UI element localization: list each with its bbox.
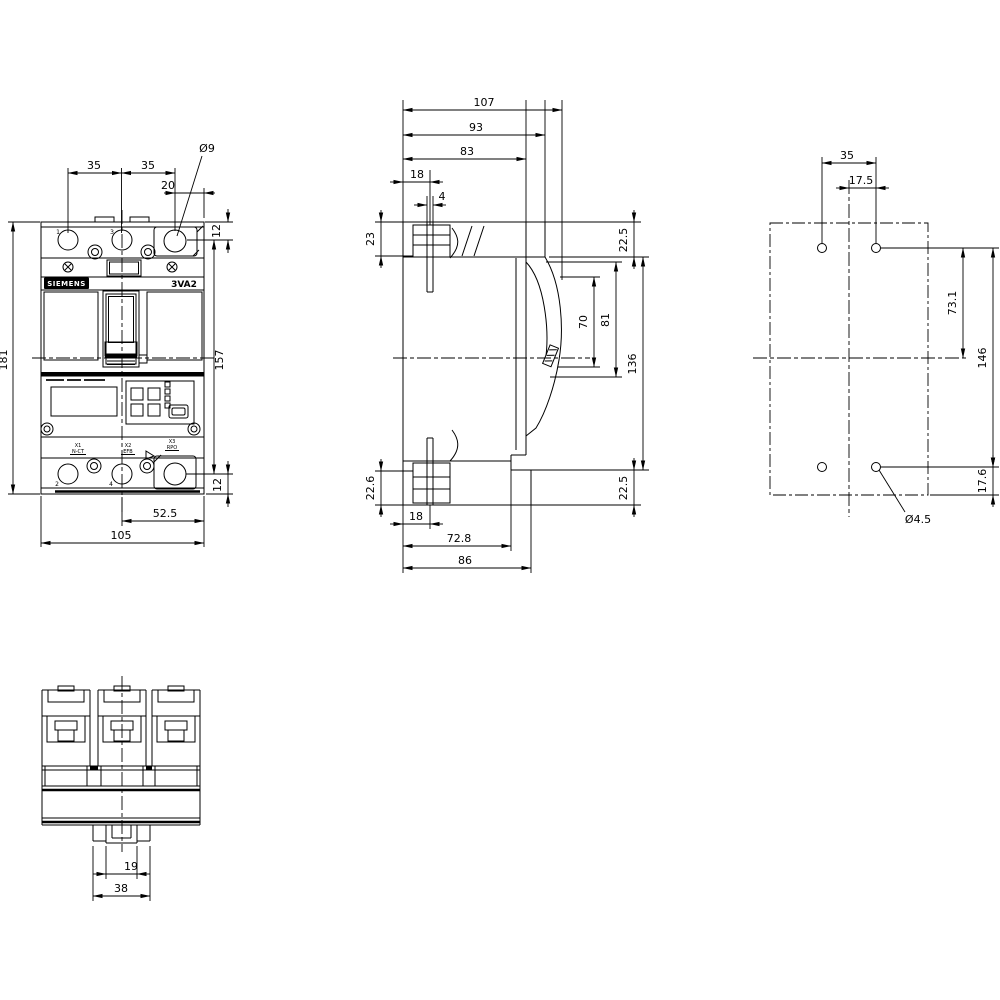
dim-mount-17-5: 17.5 xyxy=(849,174,874,187)
dim-side-81: 81 xyxy=(599,313,612,327)
terminal-2-hole xyxy=(58,464,78,484)
cover-screw-top-right xyxy=(167,262,177,272)
din-clip-bottom xyxy=(413,463,450,503)
mounting-hole-top-left xyxy=(818,244,827,253)
dim-front-181: 181 xyxy=(0,350,10,371)
left-cover-panel xyxy=(44,292,98,360)
dim-side-4: 4 xyxy=(439,190,446,203)
dim-front-105: 105 xyxy=(111,529,132,542)
dim-side-18-top: 18 xyxy=(410,168,424,181)
etu-button xyxy=(148,388,160,400)
dim-front-157: 157 xyxy=(213,350,226,371)
dim-side-93: 93 xyxy=(469,121,483,134)
dim-side-107: 107 xyxy=(474,96,495,109)
brand-label: SIEMENS xyxy=(47,280,86,288)
dim-side-22-5-top: 22.5 xyxy=(617,228,630,253)
side-view: 107 93 83 18 4 23 22.6 xyxy=(364,96,649,573)
dim-front-52-5: 52.5 xyxy=(153,507,178,520)
pole-4-number: 4 xyxy=(109,481,113,488)
etu-button xyxy=(148,404,160,416)
dim-front-20: 20 xyxy=(161,179,175,192)
etu-button xyxy=(131,388,143,400)
pole-1-number: 1 xyxy=(56,229,60,236)
etu-display xyxy=(51,387,117,416)
din-clip-top xyxy=(413,225,450,257)
din-release-tab xyxy=(93,825,150,843)
dim-mount-hole-dia: Ø4.5 xyxy=(905,513,931,526)
pole-terminals xyxy=(42,686,200,786)
pole-3-number: 3 xyxy=(110,229,114,236)
dim-side-136: 136 xyxy=(626,354,639,375)
dim-front-35-right: 35 xyxy=(141,159,155,172)
mounting-view: 35 17.5 73.1 146 17.6 Ø4.5 xyxy=(753,149,999,526)
mounting-hole-bottom-left xyxy=(818,463,827,472)
model-label: 3VA2 xyxy=(171,280,197,290)
bottom-view: 19 38 xyxy=(42,676,200,901)
dim-side-70: 70 xyxy=(577,315,590,329)
bottom-right-terminal-hole xyxy=(164,463,186,485)
dim-front-12-top: 12 xyxy=(210,224,223,238)
top-right-terminal-hole xyxy=(164,230,186,252)
dim-mount-35: 35 xyxy=(840,149,854,162)
dimension-drawing-canvas: 1 3 SIEMENS 3VA2 xyxy=(0,0,1000,1000)
dim-front-12-bottom: 12 xyxy=(211,478,224,492)
dimension-drawing: 1 3 SIEMENS 3VA2 xyxy=(0,0,1000,1000)
dim-side-22-6: 22.6 xyxy=(364,476,377,501)
dim-mount-73-1: 73.1 xyxy=(946,291,959,316)
etu-button xyxy=(131,404,143,416)
toggle-side xyxy=(543,345,559,367)
front-view: 1 3 SIEMENS 3VA2 xyxy=(0,142,233,547)
dim-bottom-19: 19 xyxy=(124,860,138,873)
dim-side-23: 23 xyxy=(364,232,377,246)
dim-bottom-38: 38 xyxy=(114,882,128,895)
dim-mount-146: 146 xyxy=(976,348,989,369)
handle-escutcheon-curve xyxy=(526,257,561,436)
dim-side-18-bottom: 18 xyxy=(409,510,423,523)
front-black-band xyxy=(41,372,204,377)
dim-front-hole-dia: Ø9 xyxy=(199,142,215,155)
corner-screw-right xyxy=(188,423,200,435)
bottom-right-terminal-block xyxy=(154,456,196,489)
corner-screw-left xyxy=(41,423,53,435)
mounting-hole-top-right xyxy=(872,244,881,253)
dim-side-86: 86 xyxy=(458,554,472,567)
dim-side-72-8: 72.8 xyxy=(447,532,472,545)
cover-screw-top-left xyxy=(63,262,73,272)
right-cover-panel xyxy=(147,292,202,360)
dim-front-35-left: 35 xyxy=(87,159,101,172)
dim-side-83: 83 xyxy=(460,145,474,158)
dim-mount-17-6: 17.6 xyxy=(976,469,989,494)
pole-2-number: 2 xyxy=(55,481,59,488)
dim-side-22-5-bottom: 22.5 xyxy=(617,476,630,501)
